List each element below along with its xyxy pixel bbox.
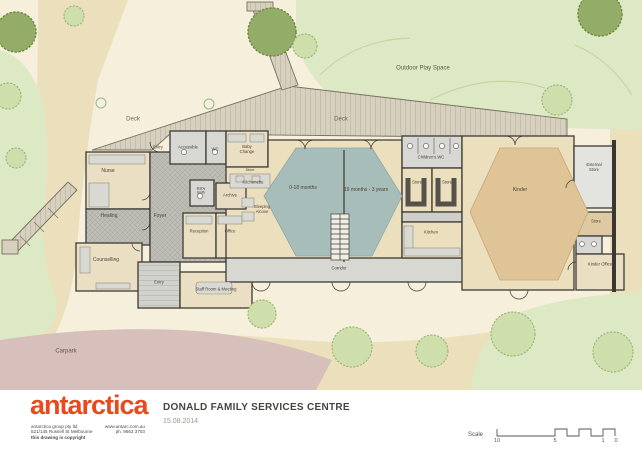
antarctica-logo: antarctica (30, 390, 148, 421)
drawing-title: DONALD FAMILY SERVICES CENTRE (163, 402, 350, 413)
kinder-office-room (576, 254, 624, 290)
tree (64, 6, 84, 26)
scale-tick: 1 (601, 438, 604, 444)
baby-bath-room (190, 180, 214, 206)
brand-address: antarctica group pty ltd www.antarc.com.… (31, 424, 145, 440)
wc-room (206, 131, 226, 164)
tree (248, 8, 296, 56)
bench-row (402, 212, 462, 222)
scale-tick: 10 (494, 438, 500, 444)
ladder-element (331, 214, 349, 260)
scale-bar (497, 429, 615, 436)
drawing-date: 15.08.2014 (163, 418, 198, 425)
east-wall (612, 140, 616, 292)
drawing-sheet: Deck Deck Outdoor Play Space Carpark Ent… (0, 0, 642, 454)
tree (6, 148, 26, 168)
scale-tick: 0 (614, 438, 617, 444)
childrens-wc-room (402, 136, 462, 168)
brand-address-line: ph. 9663 3703 (116, 429, 145, 434)
brand-address-line: 521/145 Russell St Melbourne (31, 429, 93, 434)
healing-room (86, 209, 150, 245)
accessible-wc-room (170, 131, 206, 164)
floor-plan-graphic (0, 0, 642, 454)
tree (96, 98, 106, 108)
ramp-landing (2, 240, 18, 254)
tree (593, 332, 633, 372)
tree (204, 99, 214, 109)
tree (248, 300, 276, 328)
scale-tick: 5 (553, 438, 556, 444)
scale-label: Scale (468, 432, 483, 438)
tree (416, 335, 448, 367)
tree (542, 85, 572, 115)
entry-vestibule (138, 262, 180, 308)
corridor-area (226, 258, 468, 282)
tree (332, 327, 372, 367)
tree (293, 34, 317, 58)
tree (491, 312, 535, 356)
brand-copyright: this drawing is copyright (31, 435, 145, 440)
